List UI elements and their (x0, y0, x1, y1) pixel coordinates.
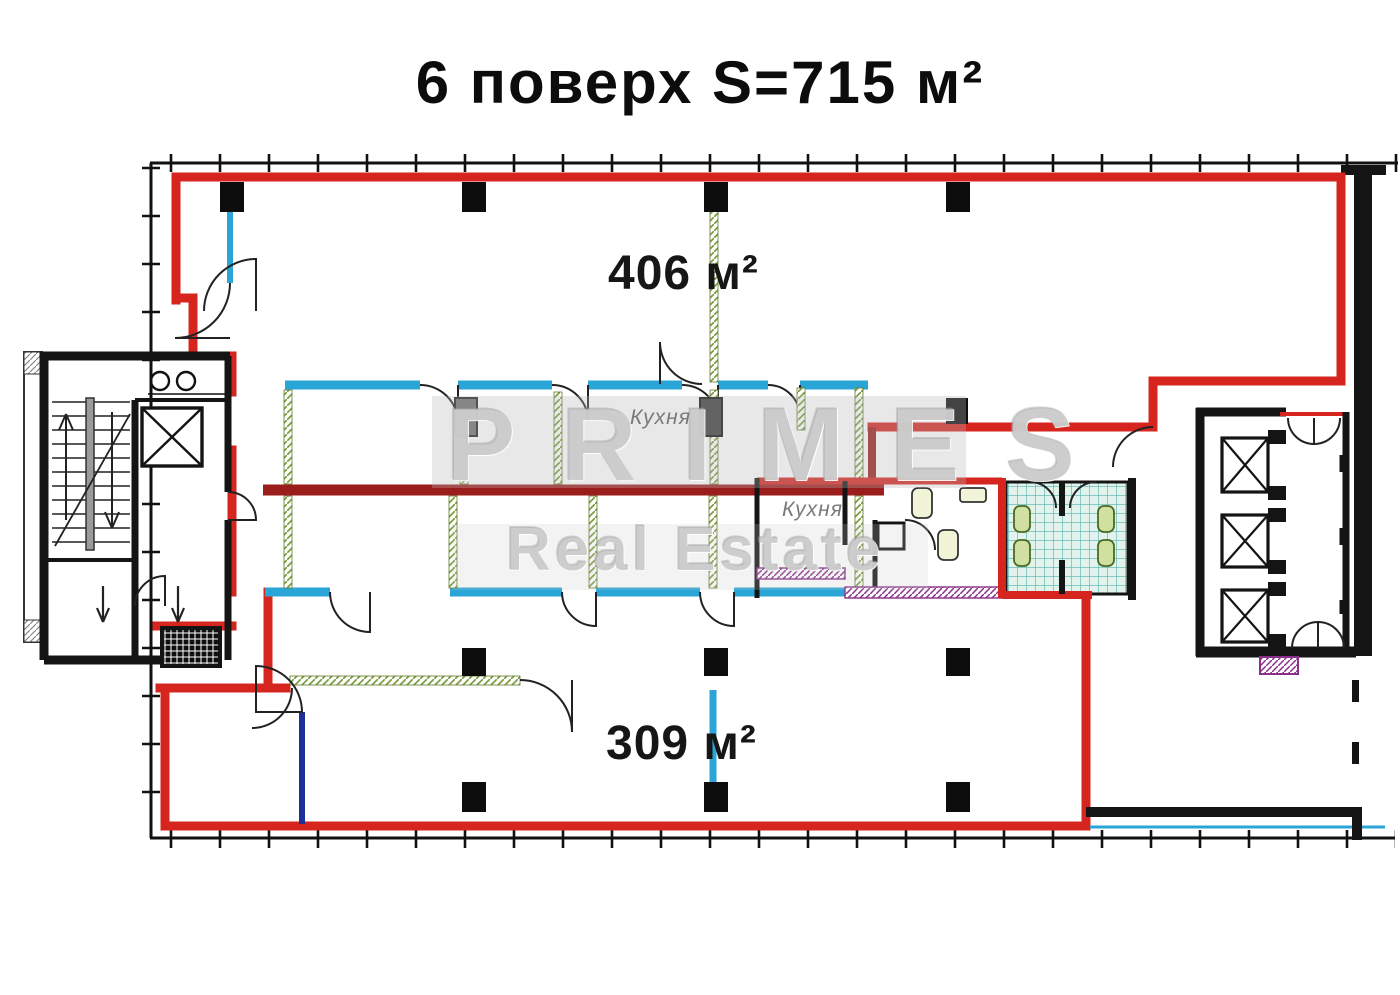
watermark-subtitle-text: Real Estate (506, 514, 884, 585)
kitchen-label-1: Кухня (630, 406, 691, 430)
right-elevator-core (1196, 408, 1356, 674)
corridor-door-arc (520, 680, 572, 732)
facade-left-ticked-line (142, 163, 160, 838)
blue-partition-bottom-doors (330, 592, 734, 632)
kitchen-label-2: Кухня (782, 498, 843, 522)
area-label-309: 309 м² (606, 716, 757, 771)
facade-top-ticked-line (150, 154, 1398, 172)
facade-bottom-ticked-line (150, 830, 1395, 848)
left-core (24, 352, 256, 666)
area-label-406: 406 м² (608, 246, 759, 301)
floor-plan-page: PRIMES Real Estate 6 поверх S=715 м² 406… (0, 0, 1400, 995)
floor-title: 6 поверх S=715 м² (0, 48, 1400, 117)
watermark-brand-text: PRIMES (446, 386, 1121, 505)
